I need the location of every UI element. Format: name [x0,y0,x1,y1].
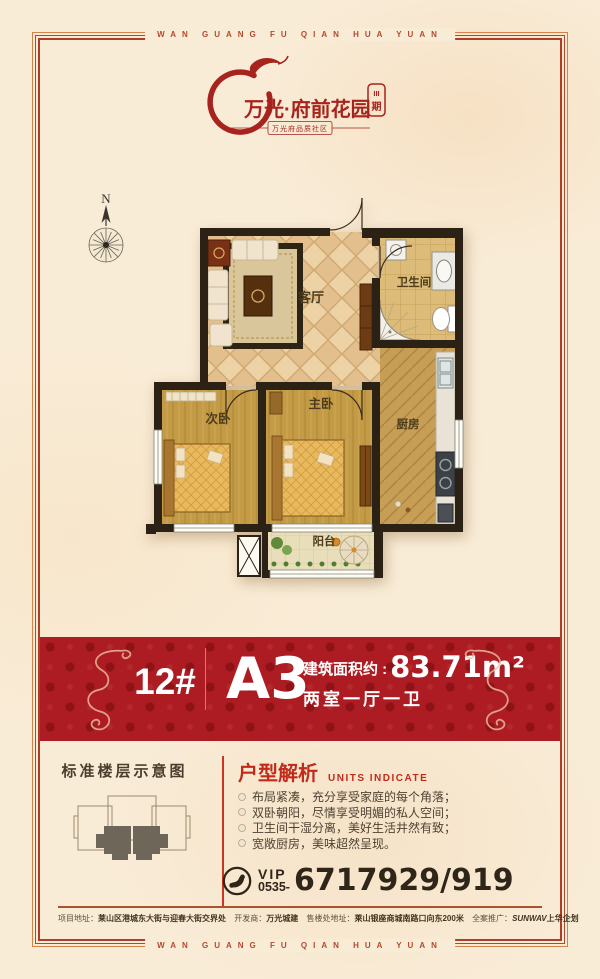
sales-office-label: 售楼处地址： [306,914,354,923]
poster: WAN GUANG FU QIAN HUA YUAN WAN GUANG FU … [0,0,600,979]
floorplan: 客厅 卫生间 厨房 主卧 次卧 阳台 [146,186,468,598]
project-address-value: 莱山区港城东大街与迎春大街交界处 [98,914,226,923]
footer-address: 项目地址：莱山区港城东大街与迎春大街交界处 开发商：万光城建 售楼处地址：莱山银… [58,913,548,925]
agency-brand: SUNWAV [512,914,547,923]
analysis-header: 户型解析 UNITS INDICATE [238,757,428,786]
logo-tagline-text: 万光府品质社区 [272,124,328,133]
bullet-icon [238,839,246,847]
hall-cabinet [360,284,372,350]
agency-value: 上华企划 [547,914,579,923]
bullet-icon [238,824,246,832]
analysis-point: 布局紧凑，充分享受家庭的每个角落； [238,789,456,805]
analysis-point: 卫生间干湿分离，美好生活井然有致； [238,820,456,836]
balcony-label: 阳台 [313,534,336,548]
border-text-top: WAN GUANG FU QIAN HUA YUAN [145,28,455,41]
bathroom-label: 卫生间 [397,275,432,289]
analysis-point-text: 卫生间干湿分离，美好生活井然有致； [252,819,456,836]
area-label: 建筑面积约 : [303,658,387,682]
building-outline [74,796,190,850]
analysis-point: 双卧朝阳，尽情享受明媚的私人空间； [238,805,456,821]
bullet-icon [238,808,246,816]
analysis-point-text: 双卧朝阳，尽情享受明媚的私人空间； [252,804,456,821]
analysis-points: 布局紧凑，充分享受家庭的每个角落； 双卧朝阳，尽情享受明媚的私人空间； 卫生间干… [238,789,456,851]
footer-divider [58,906,542,908]
agency-label: 全案推广： [472,914,512,923]
logo-title: 万光·府前花园 [243,97,371,121]
bullet-icon [238,793,246,801]
highlighted-units [96,826,168,860]
analysis-point: 宽敞厨房，美味超然呈现。 [238,836,456,852]
phone-number: 6717929/919 [294,863,514,898]
sales-office-value: 莱山银座商城南路口向东200米 [354,914,463,923]
banner-divider [205,648,206,710]
second-bedroom-label: 次卧 [205,411,231,426]
master-bedroom-label: 主卧 [308,396,334,411]
logo: 万光·府前花园 III 期 万光府品质社区 [200,54,420,146]
phone-icon [221,865,253,897]
living-room-label: 客厅 [298,290,324,305]
compass-icon: N [82,190,130,266]
ornament-flourish-right [458,645,518,733]
kitchen-label: 厨房 [397,417,420,431]
analysis-point-text: 布局紧凑，充分享受家庭的每个角落； [252,788,456,805]
analysis-subtitle: UNITS INDICATE [328,773,428,784]
floor-diagram [66,792,198,866]
parasol-icon [340,536,368,564]
building-number: 12# [118,661,212,703]
border-text-bottom: WAN GUANG FU QIAN HUA YUAN [145,939,455,952]
phone-row: VIP 0535- 6717929/919 [221,863,514,898]
vip-label: VIP [258,867,290,881]
phone-area-code: 0535- [258,881,290,894]
living-room-furniture [208,240,300,346]
unit-code: A3 [226,647,310,711]
analysis-title: 户型解析 [238,757,318,786]
phone-prefix-block: VIP 0535- [258,867,290,894]
developer-label: 开发商： [234,914,266,923]
elevator-shaft [238,536,260,576]
phase-number: III [373,89,379,98]
project-address-label: 项目地址： [58,914,98,923]
developer-value: 万光城建 [266,914,298,923]
phase-char: 期 [372,100,382,113]
floor-diagram-title: 标准楼层示意图 [47,760,202,781]
compass-north-label: N [101,191,111,206]
analysis-point-text: 宽敞厨房，美味超然呈现。 [252,835,396,852]
unit-banner: 12# A3 建筑面积约 : 83.71m² 两室一厅一卫 [40,637,560,741]
compass-rose [89,228,123,262]
